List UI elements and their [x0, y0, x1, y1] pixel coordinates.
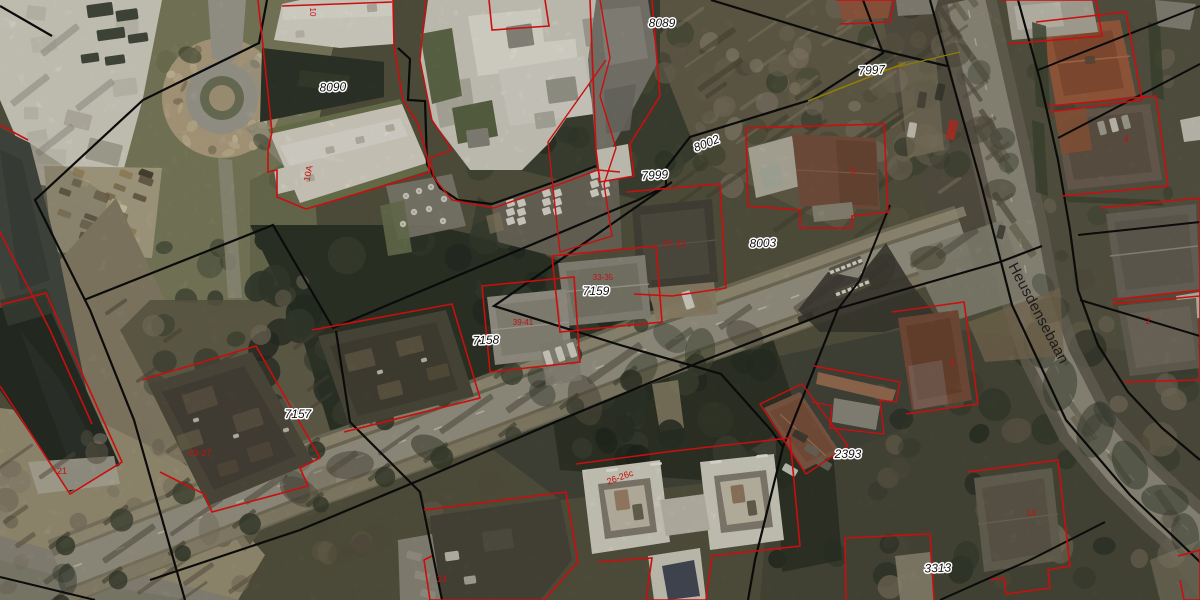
svg-text:3313: 3313: [924, 561, 951, 576]
svg-text:10: 10: [308, 8, 317, 17]
svg-text:8089: 8089: [649, 16, 676, 30]
svg-text:5: 5: [850, 166, 855, 176]
svg-text:7999: 7999: [641, 167, 669, 182]
svg-text:14: 14: [1026, 508, 1036, 518]
svg-text:3: 3: [949, 358, 954, 368]
svg-text:7158: 7158: [472, 333, 499, 348]
svg-text:33-35: 33-35: [593, 273, 614, 282]
svg-text:7157: 7157: [285, 407, 313, 421]
svg-text:39-41: 39-41: [513, 318, 534, 327]
svg-text:21: 21: [57, 466, 67, 476]
svg-text:7159: 7159: [583, 284, 610, 298]
svg-text:8003: 8003: [749, 236, 776, 251]
svg-text:4: 4: [1123, 134, 1128, 144]
svg-text:24: 24: [437, 574, 447, 584]
svg-text:23-27: 23-27: [188, 448, 211, 458]
svg-text:8090: 8090: [319, 80, 346, 95]
svg-text:7997: 7997: [858, 62, 887, 77]
svg-text:2: 2: [1145, 316, 1150, 326]
svg-text:37-43: 37-43: [662, 239, 685, 249]
svg-text:2393: 2393: [834, 447, 862, 461]
